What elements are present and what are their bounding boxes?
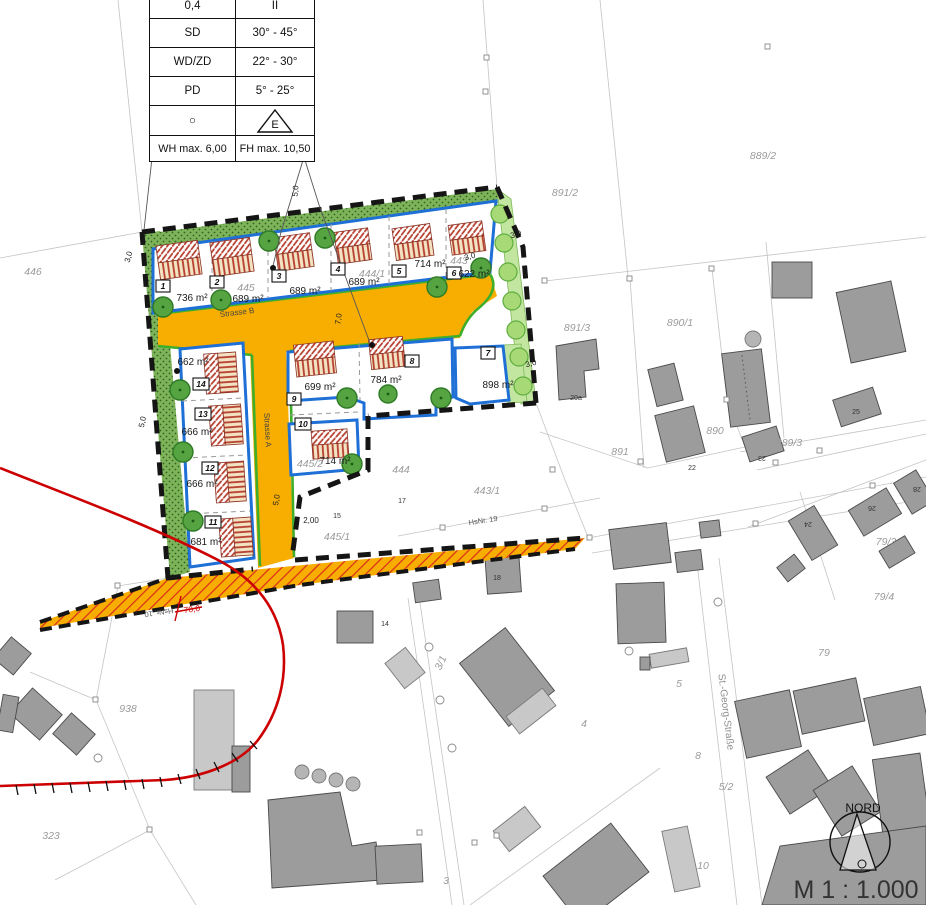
house-number: 14 [381,621,389,628]
building [772,262,812,298]
house-number: 22 [688,465,696,472]
lot-area: 662 m² [177,357,209,368]
street-name: St.-Georg-Straße [715,673,735,751]
parcel-label: 444 [392,464,410,476]
parcel-label: 889/2 [750,150,776,162]
parcel-label: 445 [237,282,255,294]
dim-label-red: 70,0 [183,603,201,615]
building [833,387,882,427]
parcel-label: 3 [443,875,449,887]
building [675,549,703,572]
building [864,686,926,745]
building [662,826,700,892]
lot-area: 681 m² [190,537,222,548]
building [609,523,671,570]
parcel-label: 323 [42,830,60,842]
building [493,806,541,851]
lot-area: 736 m² [176,293,208,304]
lot-number: 11 [209,517,218,527]
tree-circle [312,769,326,783]
lot-number: 13 [198,409,208,419]
house-ref: HsNr. 19 [468,514,498,527]
building [337,611,373,643]
building [232,746,250,792]
dim-label: 2,00 [303,516,319,525]
building [655,406,705,462]
lot-number: 14 [196,379,206,389]
lot-area: 714 m² [414,259,446,270]
building [649,648,689,668]
house-number: 24 [804,520,812,527]
lot-number: 3 [277,271,282,281]
building [777,554,805,582]
building [648,363,683,406]
legend-table: 0,4 II SD 30° - 45° WD/ZD 22° - 30° PD 5… [149,0,315,162]
building [375,844,423,884]
building [848,488,901,536]
parcel-label: 10 [697,860,709,872]
parcel-label: 75 [810,773,822,785]
dim-label: 3,0 [509,229,523,241]
building [836,281,906,363]
parcel-label: 890 [706,425,724,437]
parcel-label: 891 [611,446,629,458]
dim-label: 5,0 [291,184,301,196]
house-number: 28 [913,485,921,492]
lot-number: 5 [397,266,402,276]
tree-circle [346,777,360,791]
map-canvas: 1 2 3 4 5 6 7 8 9 10 11 12 13 14 736 m² … [0,0,926,905]
parcel-label: 446 [24,266,42,278]
parcel-label: 889/3 [776,437,802,449]
lot-area: 898 m² [482,380,514,391]
parcel-label: 4 [581,718,587,730]
house-number: 18 [493,575,501,582]
parcel-label: 891/3 [564,322,590,334]
north-label: NORD [845,801,881,815]
e-symbol: E [271,119,278,131]
lot-area: 689 m² [232,294,264,305]
parcel-label: 79 [818,647,830,659]
house-number: 17 [398,498,406,505]
lot-number: 4 [335,264,341,274]
building [53,713,96,755]
lot-number: 2 [214,277,220,287]
tree-circle [745,331,761,347]
legend-cell: 5° - 25° [236,76,314,105]
building [268,792,382,888]
parcel-label: 445/2 [297,458,323,470]
tree-circle [295,765,309,779]
parcel-label: 8 [695,750,701,762]
parcel-label: 443/1 [474,485,500,497]
tree-circle [329,773,343,787]
legend-cell: 30° - 45° [236,18,314,47]
legend-cell: II [236,0,314,18]
lot-area: 666 m² [186,479,218,490]
building [0,637,31,675]
building [788,506,837,561]
lot-number: 10 [298,419,308,429]
building [413,579,442,602]
dim-label: 3,0 [123,250,135,264]
parcel-label: 5/2 [719,781,734,793]
legend-cell: SD [150,18,236,47]
building [735,690,802,758]
legend-cell: 0,4 [150,0,236,18]
parcel-label: 79/4 [874,591,895,603]
lot-number: 9 [292,394,297,404]
building [616,582,666,644]
building [556,339,599,400]
site-plan-map: 1 2 3 4 5 6 7 8 9 10 11 12 13 14 736 m² … [0,0,926,905]
legend-cell: 22° - 30° [236,47,314,76]
legend-cell-circle: ○ [150,105,236,135]
lot-area: 689 m² [289,286,321,297]
parcel-label: 890/1 [667,317,693,329]
building [793,678,865,734]
house-number: 26 [868,504,876,511]
legend-cell: WD/ZD [150,47,236,76]
parcel-label: 5 [676,678,682,690]
scale-text: M 1 : 1.000 [793,876,918,904]
dim-label: 7,0 [333,312,344,325]
e-triangle-icon: E [255,107,295,135]
parcel-label: 445/1 [324,531,350,543]
street-name: Strasse A [262,413,273,448]
legend-cell: PD [150,76,236,105]
dim-label: 5,0 [137,415,148,428]
lot-area: 784 m² [370,375,402,386]
house-number: 20a [570,395,582,402]
parcel-label: 79/3 [876,536,897,548]
building [699,520,721,538]
building [385,647,425,688]
parcel-label: 891/2 [552,187,578,199]
lot-number: 6 [452,268,457,278]
lot-number: 8 [410,356,415,366]
legend-cell-e-triangle: E [236,105,314,135]
lot-area: 666 m² [181,427,213,438]
lot-area: 699 m² [304,382,336,393]
lot-area: 714 m² [319,456,351,467]
parcel-label: 77 [768,735,781,747]
lot-area: 622 m² [458,269,490,280]
lot-number: 1 [161,281,166,291]
parcel-label: 938 [119,703,137,715]
parcel-label: 444/1 [359,268,385,280]
dim-label: 3,0 [524,358,538,370]
lot-number: 12 [205,463,215,473]
building [0,694,19,732]
legend-cell: WH max. 6,00 [150,135,236,161]
house-number: 23 [758,454,766,461]
house-number: 25 [852,409,860,416]
building [543,823,649,905]
house-number: 15 [333,513,341,520]
parcel-label: 3/1 [432,654,449,672]
building [640,657,650,670]
legend-cell: FH max. 10,50 [236,135,314,161]
